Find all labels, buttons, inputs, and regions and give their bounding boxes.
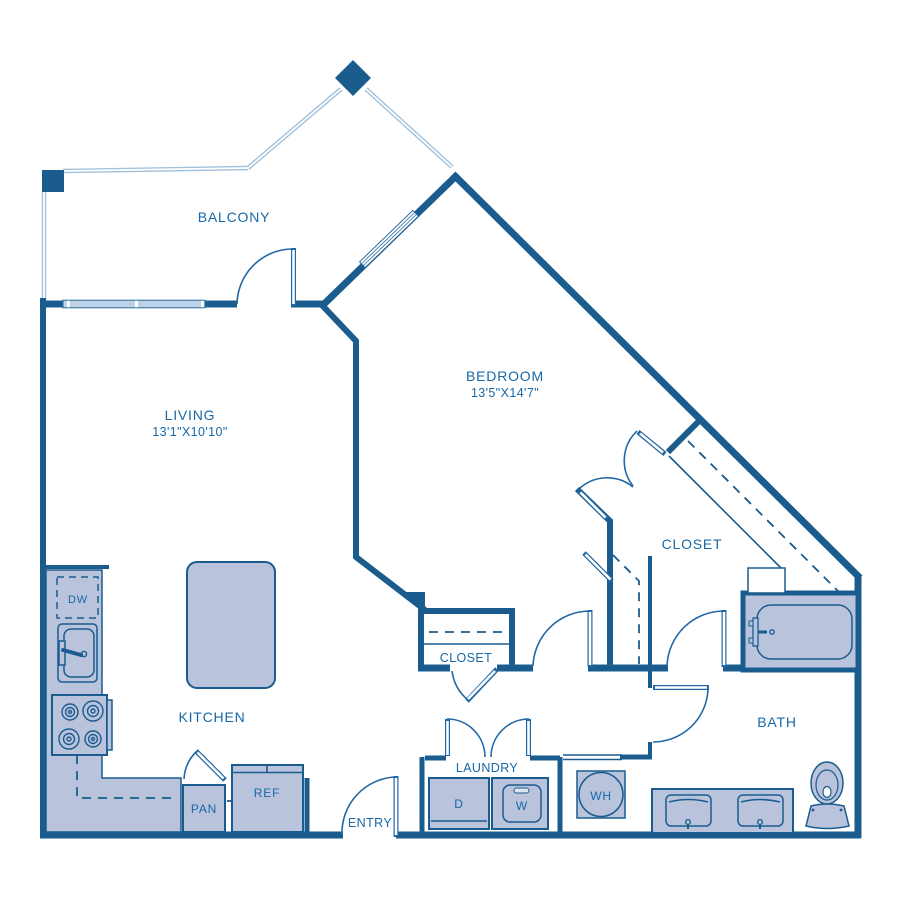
- living-dims: 13'1"X10'10": [152, 425, 227, 439]
- bedroom-dims: 13'5"X14'7": [471, 386, 539, 400]
- kitchen-sink: [58, 624, 97, 682]
- water-heater-label: WH: [590, 789, 612, 803]
- dishwasher-label: DW: [68, 594, 88, 606]
- balcony-left-post-icon: [42, 170, 64, 192]
- bath-label: BATH: [757, 714, 797, 730]
- pantry-label: PAN: [191, 802, 217, 816]
- laundry-bifold-doors: [447, 719, 529, 757]
- refrigerator: REF: [232, 765, 303, 832]
- bedroom-label: BEDROOM: [466, 368, 544, 384]
- balcony-door: [237, 248, 294, 308]
- entry-label: ENTRY: [348, 816, 392, 830]
- bedroom-door: [533, 610, 590, 667]
- vanity-sink-icon: [666, 795, 711, 829]
- floor-plan-page: DW PAN REF D W: [0, 0, 900, 900]
- living-window: [63, 300, 205, 308]
- bath-door: [653, 688, 709, 743]
- balcony-label: BALCONY: [198, 209, 271, 225]
- exterior-walls: [40, 174, 861, 838]
- vanity-sink-icon: [738, 795, 783, 829]
- bedroom-window: [360, 210, 419, 267]
- dryer: D: [429, 778, 489, 829]
- toilet-icon: [806, 762, 849, 829]
- bedroom-closet-label: CLOSET: [662, 536, 723, 552]
- kitchen-label: KITCHEN: [178, 709, 245, 725]
- closet-bath-door: [667, 610, 724, 667]
- water-heater: WH: [577, 771, 625, 818]
- floor-plan-drawing: DW PAN REF D W: [0, 0, 900, 900]
- hall-closet-door: [452, 669, 497, 701]
- dryer-label: D: [454, 797, 463, 811]
- living-label: LIVING: [165, 407, 216, 423]
- washer: W: [492, 778, 548, 829]
- refrigerator-label: REF: [254, 786, 280, 800]
- balcony-railing: [44, 89, 452, 299]
- kitchen-island: [187, 562, 275, 688]
- stove: [52, 695, 112, 755]
- pantry-door: [184, 751, 225, 780]
- bath-vanity: [652, 789, 793, 833]
- washer-label: W: [516, 799, 528, 813]
- bathtub: [743, 568, 858, 670]
- hall-closet-label: CLOSET: [440, 651, 492, 665]
- pantry: PAN: [183, 785, 225, 832]
- laundry-label: LAUNDRY: [456, 761, 519, 775]
- interior-walls: [44, 303, 782, 835]
